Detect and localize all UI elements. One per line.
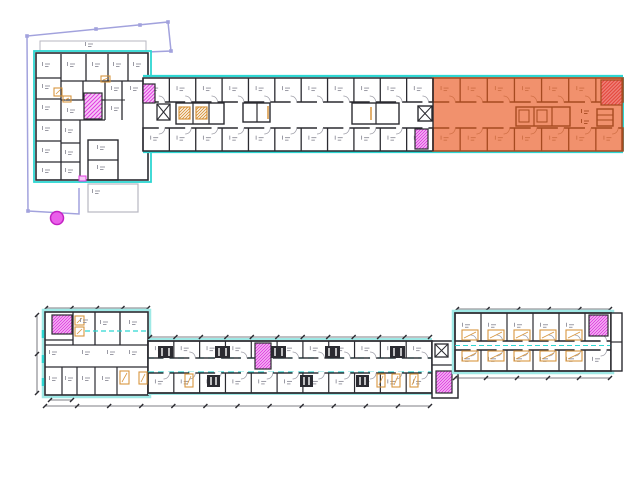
pod <box>390 346 405 358</box>
red-stair-room <box>601 80 622 105</box>
pod <box>207 375 220 387</box>
pod <box>215 346 230 358</box>
pod <box>325 346 340 358</box>
revision-marker <box>51 212 64 225</box>
l-block-stair <box>84 93 102 119</box>
pod <box>356 375 369 387</box>
floorplan-svg <box>0 0 640 479</box>
wing-left-stair <box>143 84 155 103</box>
upper-strip-label <box>86 42 94 47</box>
shaft-xbox <box>418 106 432 121</box>
pod <box>271 346 286 358</box>
dim-right-block-bottom <box>453 376 612 380</box>
lower-left-stair <box>52 315 72 334</box>
connector-shaft <box>435 344 448 357</box>
dim-left-vertical <box>35 313 39 395</box>
lower-wing-walls <box>148 341 432 393</box>
upper-elevator <box>415 129 428 149</box>
right-block-stair <box>589 315 608 336</box>
cad-viewport <box>0 0 640 479</box>
lower-elevator <box>255 343 271 369</box>
entry-room <box>88 184 138 212</box>
core-spiral-stair <box>157 104 170 120</box>
dim-small-bottom-left <box>48 398 74 402</box>
connector-stair <box>436 371 452 393</box>
site-boundary-pocket <box>28 188 79 214</box>
l-block-magenta-door <box>79 176 86 181</box>
pod <box>300 375 313 387</box>
dim-wing-bottom <box>43 404 432 408</box>
pod <box>158 346 173 358</box>
